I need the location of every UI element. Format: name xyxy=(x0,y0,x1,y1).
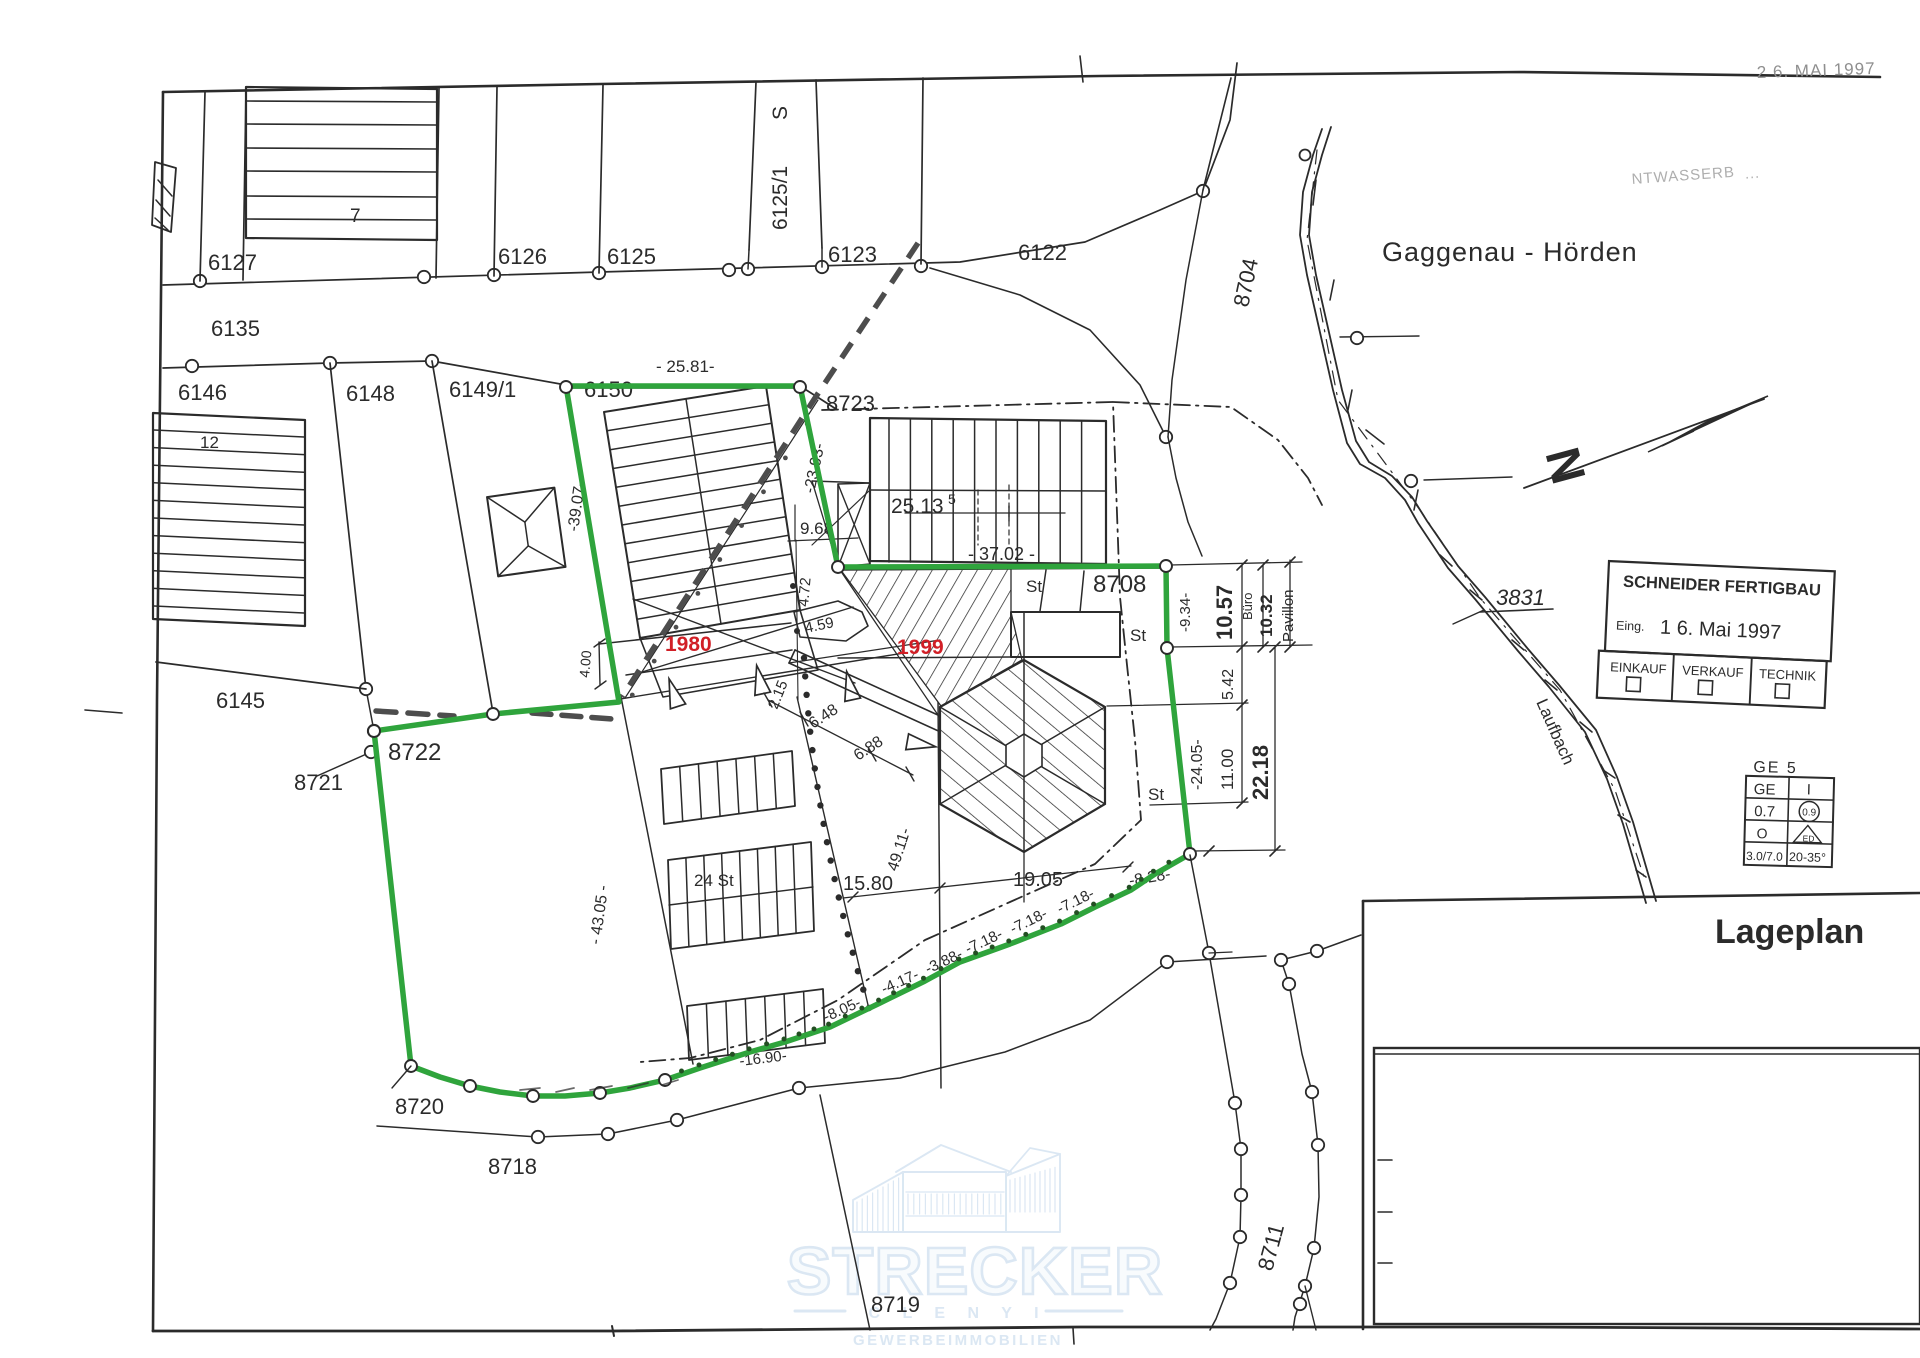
svg-text:Eing.: Eing. xyxy=(1616,618,1645,633)
svg-text:6149/1: 6149/1 xyxy=(449,377,516,402)
svg-text:8722: 8722 xyxy=(388,739,441,766)
svg-text:0.9: 0.9 xyxy=(1802,807,1817,818)
svg-text:6148: 6148 xyxy=(346,381,395,406)
svg-text:8719: 8719 xyxy=(871,1292,920,1317)
svg-text:Lageplan: Lageplan xyxy=(1715,913,1864,951)
svg-text:6122: 6122 xyxy=(1018,240,1067,265)
svg-text:Pavillon: Pavillon xyxy=(1280,589,1297,642)
svg-text:3.0/7.0: 3.0/7.0 xyxy=(1746,849,1783,864)
svg-text:15.80: 15.80 xyxy=(843,873,893,895)
svg-text:6146: 6146 xyxy=(178,380,227,405)
svg-text:5.42: 5.42 xyxy=(1220,669,1237,700)
svg-text:10.32: 10.32 xyxy=(1257,594,1276,637)
svg-text:6125/1: 6125/1 xyxy=(769,166,792,230)
svg-text:4.72: 4.72 xyxy=(795,577,814,608)
svg-text:11.00: 11.00 xyxy=(1218,749,1237,790)
svg-text:St: St xyxy=(1148,785,1164,804)
svg-text:19.05: 19.05 xyxy=(1013,869,1063,891)
svg-text:1999: 1999 xyxy=(897,636,944,659)
svg-text:-9.34-: -9.34- xyxy=(1177,593,1194,632)
svg-text:24 St: 24 St xyxy=(694,871,734,890)
svg-text:25.13: 25.13 xyxy=(891,495,944,518)
svg-text:STRECKER: STRECKER xyxy=(787,1234,1164,1309)
svg-text:- 25.81-: - 25.81- xyxy=(656,357,715,376)
svg-text:6127: 6127 xyxy=(208,250,257,275)
svg-text:5: 5 xyxy=(948,491,956,507)
svg-text:- 37.02 -: - 37.02 - xyxy=(968,544,1035,564)
svg-text:12: 12 xyxy=(200,433,219,452)
svg-text:4.00: 4.00 xyxy=(576,650,594,679)
svg-text:0.7: 0.7 xyxy=(1754,803,1775,821)
svg-text:S: S xyxy=(769,106,792,120)
svg-text:GEWERBEIMMOBILIEN: GEWERBEIMMOBILIEN xyxy=(853,1332,1063,1349)
svg-text:Gaggenau - Hörden: Gaggenau - Hörden xyxy=(1382,237,1638,267)
svg-text:6125: 6125 xyxy=(607,244,656,269)
svg-text:EINKAUF: EINKAUF xyxy=(1610,659,1667,677)
svg-text:VERKAUF: VERKAUF xyxy=(1682,663,1744,681)
svg-text:22.18: 22.18 xyxy=(1248,745,1273,800)
svg-text:St: St xyxy=(1026,577,1042,596)
svg-text:8718: 8718 xyxy=(488,1154,537,1179)
svg-text:-24.05-: -24.05- xyxy=(1189,739,1206,790)
svg-text:3831: 3831 xyxy=(1496,585,1545,610)
svg-text:1980: 1980 xyxy=(665,633,712,656)
svg-text:6135: 6135 xyxy=(211,316,260,341)
svg-text:ED: ED xyxy=(1802,833,1814,843)
svg-text:6150: 6150 xyxy=(584,377,633,402)
svg-text:O: O xyxy=(1756,825,1767,841)
svg-text:···: ··· xyxy=(1744,168,1760,186)
svg-text:8723: 8723 xyxy=(826,391,875,416)
svg-text:GE 5: GE 5 xyxy=(1753,759,1798,777)
svg-text:I: I xyxy=(1807,781,1812,798)
svg-text:7: 7 xyxy=(350,206,361,227)
svg-text:Büro: Büro xyxy=(1240,593,1255,620)
svg-text:10.57: 10.57 xyxy=(1212,585,1237,640)
svg-text:St: St xyxy=(1130,626,1146,645)
svg-text:8720: 8720 xyxy=(395,1094,444,1119)
svg-text:6145: 6145 xyxy=(216,688,265,713)
svg-text:6126: 6126 xyxy=(498,244,547,269)
svg-text:GE: GE xyxy=(1754,781,1776,799)
svg-text:6123: 6123 xyxy=(828,242,877,267)
svg-text:8721: 8721 xyxy=(294,770,343,795)
svg-text:20-35°: 20-35° xyxy=(1789,850,1826,865)
svg-text:TECHNIK: TECHNIK xyxy=(1759,666,1817,684)
